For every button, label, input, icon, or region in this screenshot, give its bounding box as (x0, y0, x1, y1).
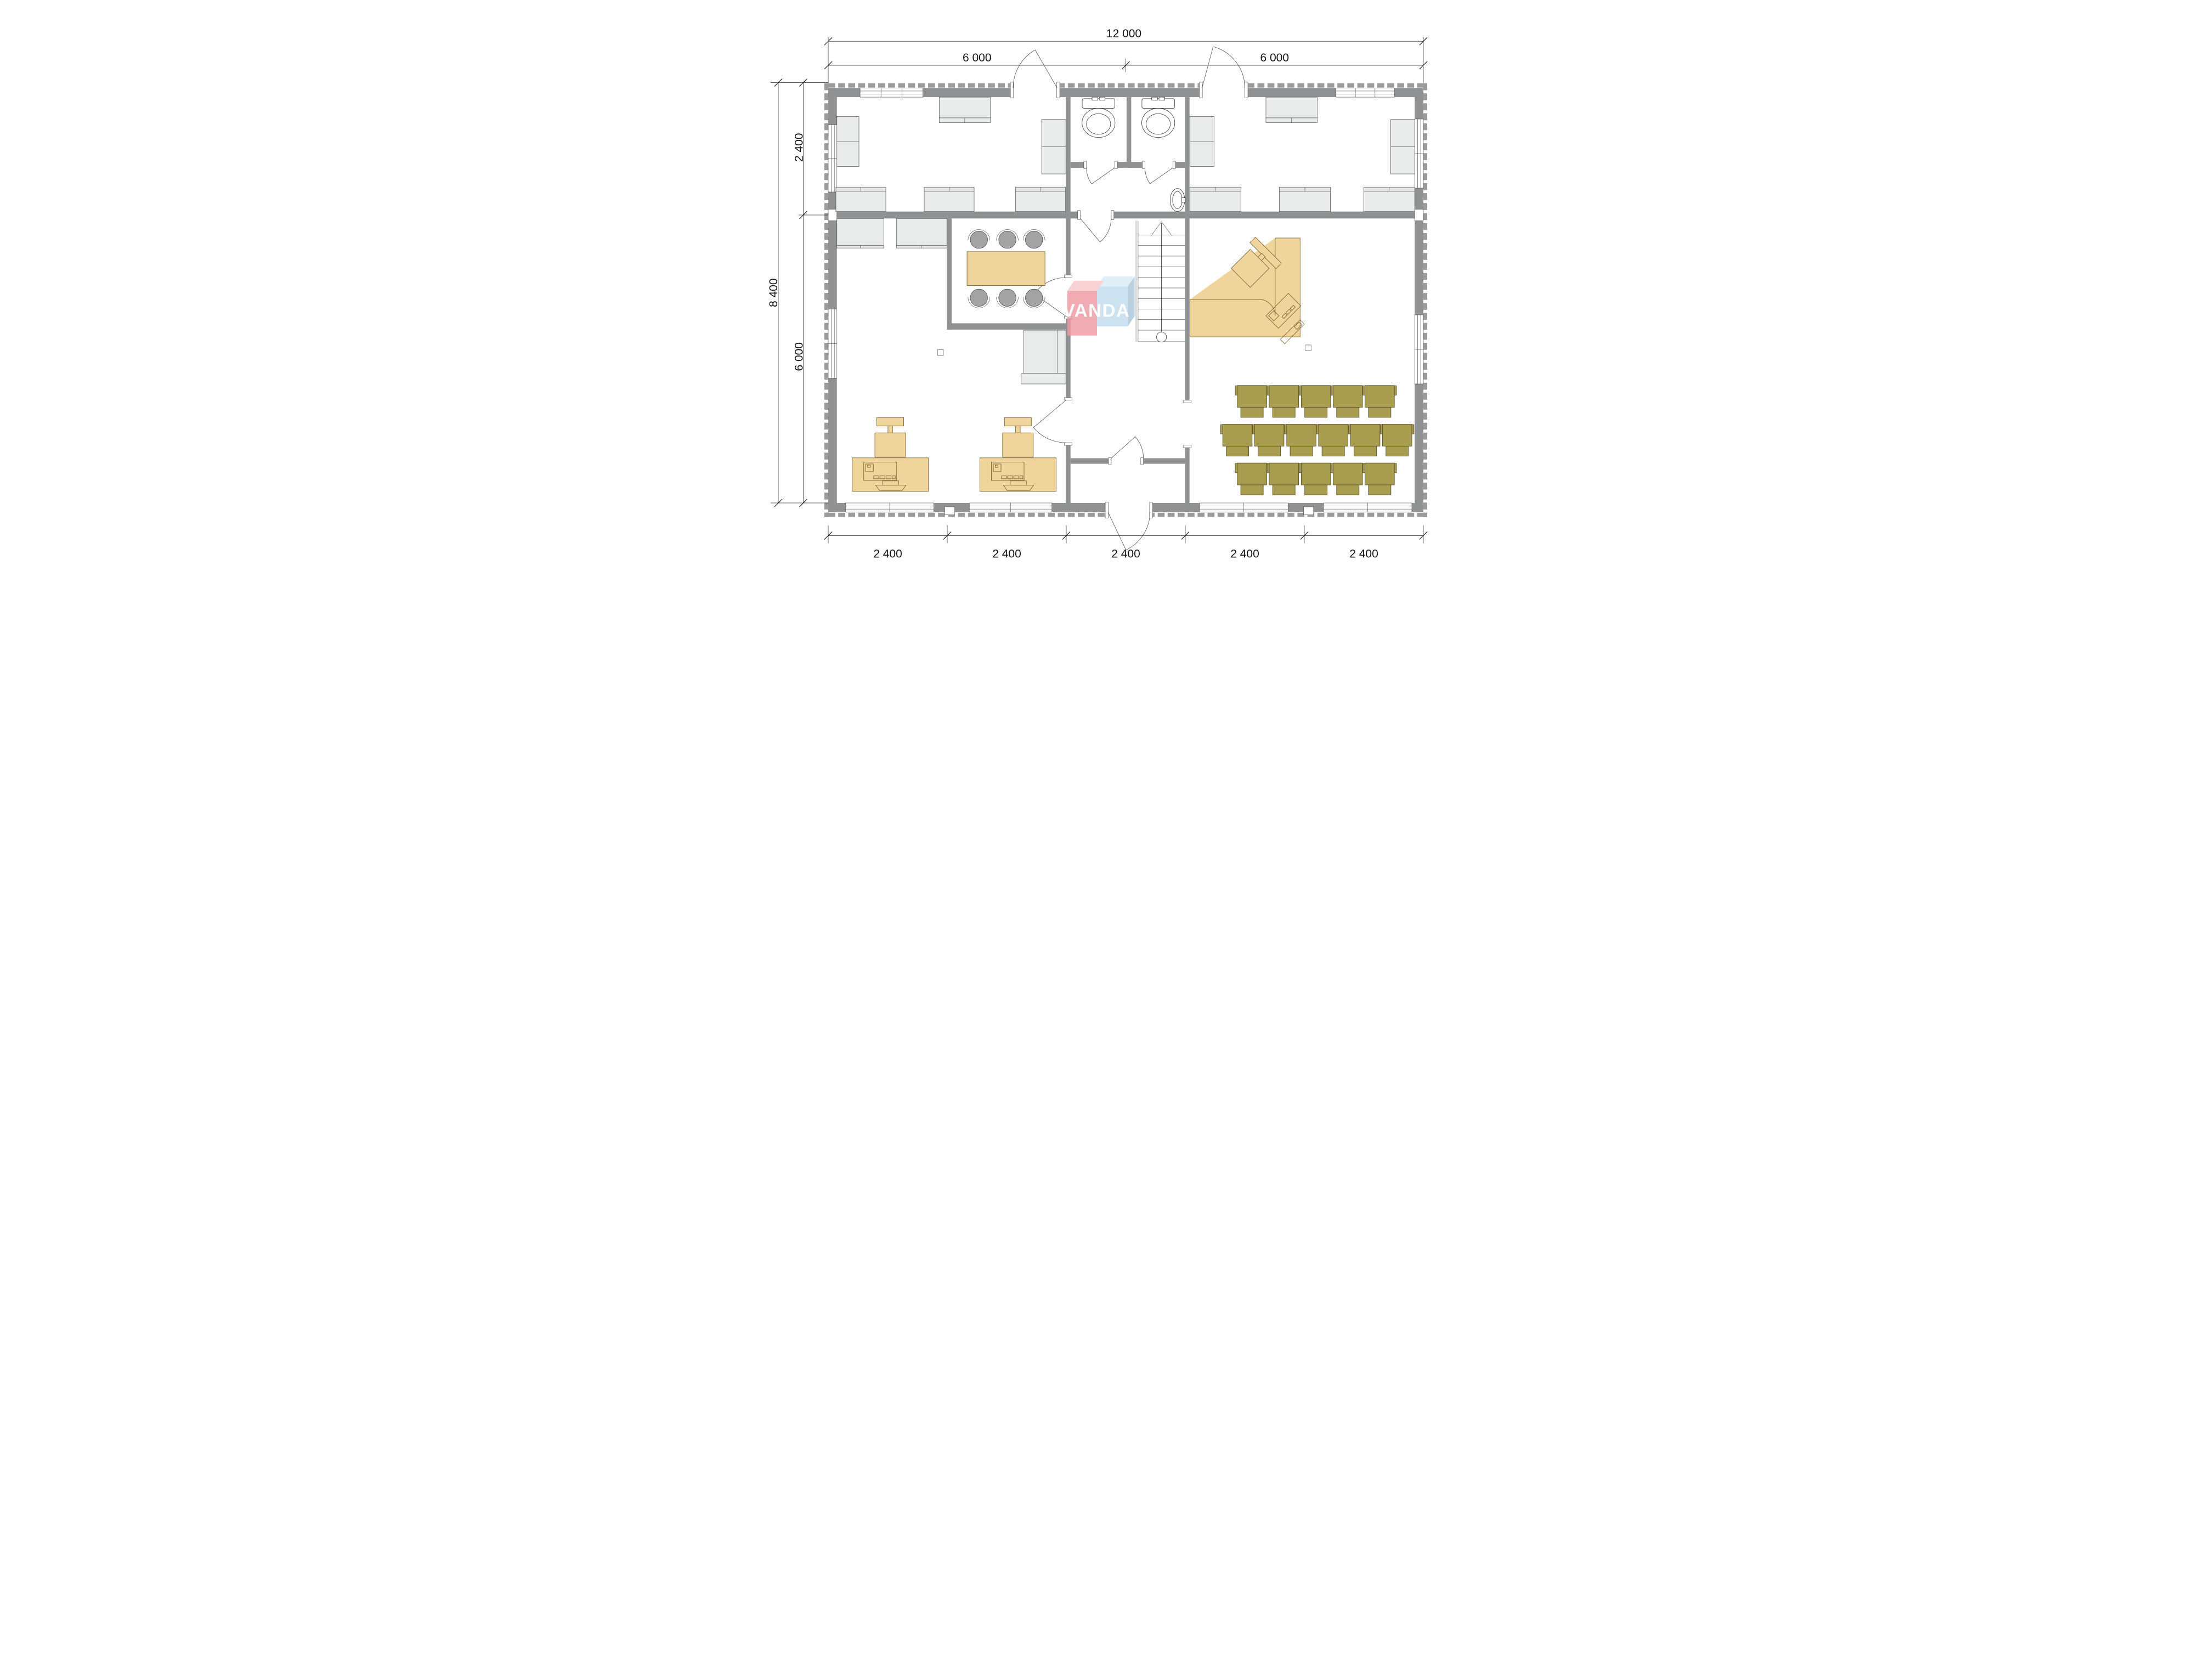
wall-v2-upper (1185, 97, 1189, 403)
window-bottom-4 (1324, 503, 1412, 512)
floor-box (1305, 345, 1311, 350)
storage-unit (1024, 330, 1066, 374)
reception (1190, 237, 1304, 343)
wall-vent-left (945, 507, 954, 515)
wall-junction-cap-left (828, 209, 837, 220)
table (896, 218, 947, 245)
window-left-lower (828, 309, 837, 378)
dim-label-bottom-4: 2 400 (1230, 548, 1259, 561)
door-left-room (1033, 400, 1066, 443)
interior-wall-main-right (1111, 212, 1415, 219)
wall-v1-upper (1066, 97, 1070, 278)
audience-chair (1363, 463, 1396, 495)
sanitary (1082, 97, 1185, 212)
window-right-lower (1415, 315, 1423, 384)
dim-label-top-right: 6 000 (1260, 52, 1289, 64)
door-entrance (1108, 512, 1150, 550)
lobby-wall-left (1071, 458, 1111, 463)
reception-desk (1190, 238, 1300, 337)
workstation-desk (852, 417, 929, 491)
table (837, 218, 884, 245)
door-gap-entrance (1108, 502, 1150, 517)
dim-label-left-upper: 2 400 (793, 133, 805, 162)
wall-junction-cap-right (1415, 209, 1423, 220)
cabinet (1266, 97, 1317, 118)
audience-chair (1299, 463, 1333, 495)
audience-chair (1331, 386, 1365, 417)
audience-chair (1220, 424, 1254, 456)
audience-chair (1252, 424, 1286, 456)
meeting-area (967, 230, 1045, 308)
lobby-wall-right (1144, 458, 1185, 463)
audience-seating (1220, 386, 1413, 495)
workstation-desk (980, 417, 1056, 491)
door-wc-left (1087, 168, 1115, 184)
audience-chair (1299, 386, 1333, 417)
toilet-icon (1082, 97, 1115, 137)
audience-chair (1316, 424, 1350, 456)
window-bottom-3 (1200, 503, 1288, 512)
floor-plan-sheet: VANDA 12 000 6 000 6 000 8 400 2 400 6 0… (713, 0, 1481, 588)
dim-label-top-total: 12 000 (1106, 27, 1141, 40)
dim-label-bottom-2: 2 400 (992, 548, 1021, 561)
wall-v1-lower (1066, 443, 1070, 503)
audience-chair (1331, 463, 1365, 495)
workstations (852, 417, 1056, 491)
wall-v2-lower (1185, 445, 1189, 503)
audience-chair (1235, 463, 1269, 495)
audience-chair (1363, 386, 1396, 417)
wc-front-wall-2 (1115, 162, 1145, 168)
audience-chair (1267, 463, 1300, 495)
watermark-logo: VANDA (1063, 276, 1135, 336)
wc-divider-wall (1127, 97, 1131, 168)
floor-plan-drawing: VANDA 12 000 6 000 6 000 8 400 2 400 6 0… (713, 0, 1481, 588)
meeting-room-bottom-wall (947, 323, 1070, 330)
interior-wall-main-left (837, 212, 1081, 219)
window-top-right (1336, 88, 1395, 97)
toilet-icon (1142, 97, 1175, 137)
door-gap-top-right (1202, 82, 1245, 97)
audience-chair (1381, 424, 1414, 456)
staircase (1136, 220, 1185, 342)
meeting-room-left-wall (947, 218, 952, 330)
sink-icon (1170, 189, 1185, 212)
window-left-upper (828, 125, 837, 191)
window-bottom-1 (846, 503, 934, 512)
floor-box (938, 350, 944, 356)
dim-label-left-total: 8 400 (767, 278, 780, 307)
dim-label-top-left: 6 000 (963, 52, 992, 64)
door-wc-right (1145, 168, 1173, 184)
dim-label-bottom-5: 2 400 (1349, 548, 1378, 561)
audience-chair (1235, 386, 1269, 417)
meeting-table (967, 252, 1045, 286)
window-top-left (860, 88, 923, 97)
window-right-upper (1415, 119, 1423, 188)
audience-chair (1348, 424, 1382, 456)
cabinet (939, 97, 990, 118)
audience-chair (1285, 424, 1318, 456)
wall-vent-right (1304, 507, 1314, 515)
door-gap-top-left (1013, 82, 1057, 97)
door-top-left (1013, 50, 1057, 88)
window-bottom-2 (969, 503, 1051, 512)
door-hall (1081, 218, 1111, 242)
door-lobby (1111, 437, 1144, 458)
door-top-right (1202, 47, 1245, 88)
watermark-text: VANDA (1063, 301, 1130, 321)
dim-label-left-lower: 6 000 (793, 342, 805, 371)
dim-label-bottom-1: 2 400 (873, 548, 902, 561)
dim-label-bottom-3: 2 400 (1111, 548, 1140, 561)
audience-chair (1267, 386, 1300, 417)
gray-furniture (836, 97, 1415, 384)
